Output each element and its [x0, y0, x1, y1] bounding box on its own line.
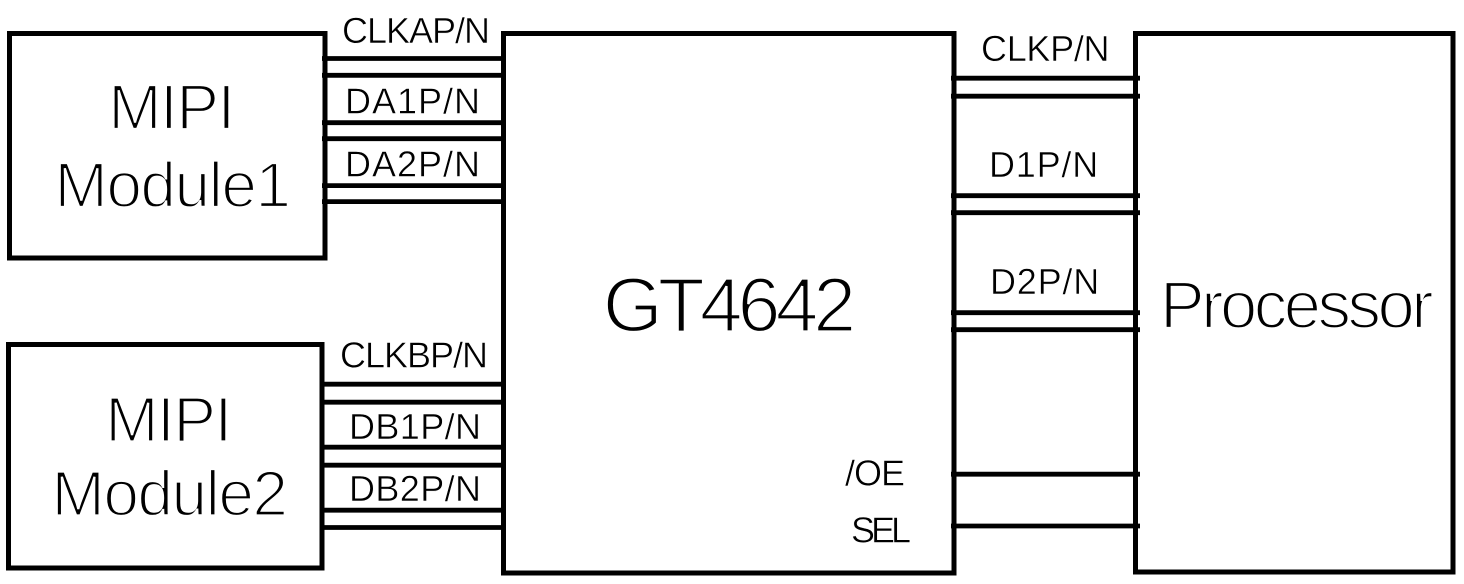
svg-text:Module2: Module2 [52, 458, 287, 530]
svg-text:GT4642: GT4642 [603, 263, 852, 349]
svg-text:MIPI: MIPI [105, 384, 231, 456]
svg-text:D1P/N: D1P/N [989, 144, 1099, 185]
svg-text:Module1: Module1 [55, 149, 290, 221]
svg-text:CLKBP/N: CLKBP/N [340, 335, 487, 376]
svg-text:D2P/N: D2P/N [990, 261, 1100, 302]
svg-text:DB2P/N: DB2P/N [349, 468, 481, 509]
svg-text:CLKP/N: CLKP/N [981, 28, 1109, 69]
svg-text:DA2P/N: DA2P/N [345, 144, 481, 185]
svg-text:MIPI: MIPI [108, 71, 234, 143]
svg-text:/OE: /OE [845, 453, 904, 494]
svg-text:SEL: SEL [851, 510, 910, 551]
svg-text:CLKAP/N: CLKAP/N [342, 10, 489, 51]
svg-text:DA1P/N: DA1P/N [345, 81, 481, 122]
svg-text:DB1P/N: DB1P/N [349, 406, 481, 447]
svg-text:Processor: Processor [1160, 268, 1433, 343]
